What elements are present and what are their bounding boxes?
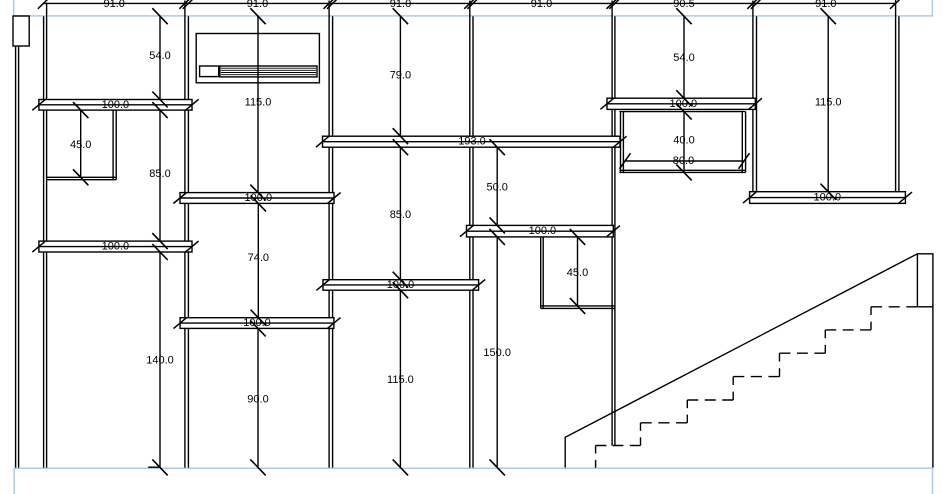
svg-text:80.0: 80.0 — [673, 155, 694, 167]
svg-text:74.0: 74.0 — [248, 252, 269, 264]
svg-text:115.0: 115.0 — [815, 96, 842, 108]
svg-text:45.0: 45.0 — [70, 139, 91, 151]
svg-text:100.0: 100.0 — [529, 225, 557, 237]
svg-text:45.0: 45.0 — [567, 267, 588, 279]
svg-text:100.0: 100.0 — [102, 241, 130, 253]
svg-text:100.0: 100.0 — [670, 98, 698, 110]
svg-text:115.0: 115.0 — [387, 374, 414, 386]
svg-text:140.0: 140.0 — [146, 354, 174, 366]
svg-text:54.0: 54.0 — [673, 52, 694, 64]
svg-text:85.0: 85.0 — [390, 209, 411, 221]
svg-text:90.0: 90.0 — [247, 393, 268, 405]
svg-text:85.0: 85.0 — [149, 168, 170, 180]
svg-text:91.0: 91.0 — [103, 0, 124, 10]
svg-text:115.0: 115.0 — [245, 96, 272, 108]
svg-text:50.0: 50.0 — [486, 182, 507, 194]
svg-text:91.0: 91.0 — [531, 0, 552, 10]
svg-text:150.0: 150.0 — [483, 347, 511, 359]
svg-text:54.0: 54.0 — [149, 50, 170, 62]
svg-text:100.0: 100.0 — [387, 279, 415, 291]
svg-text:100.0: 100.0 — [245, 192, 273, 204]
svg-text:193.0: 193.0 — [458, 136, 486, 148]
svg-text:79.0: 79.0 — [390, 70, 411, 82]
svg-text:40.0: 40.0 — [673, 135, 694, 147]
svg-text:91.0: 91.0 — [815, 0, 836, 10]
svg-text:100.0: 100.0 — [814, 192, 842, 204]
svg-text:100.0: 100.0 — [243, 317, 271, 329]
svg-text:100.0: 100.0 — [102, 99, 130, 111]
